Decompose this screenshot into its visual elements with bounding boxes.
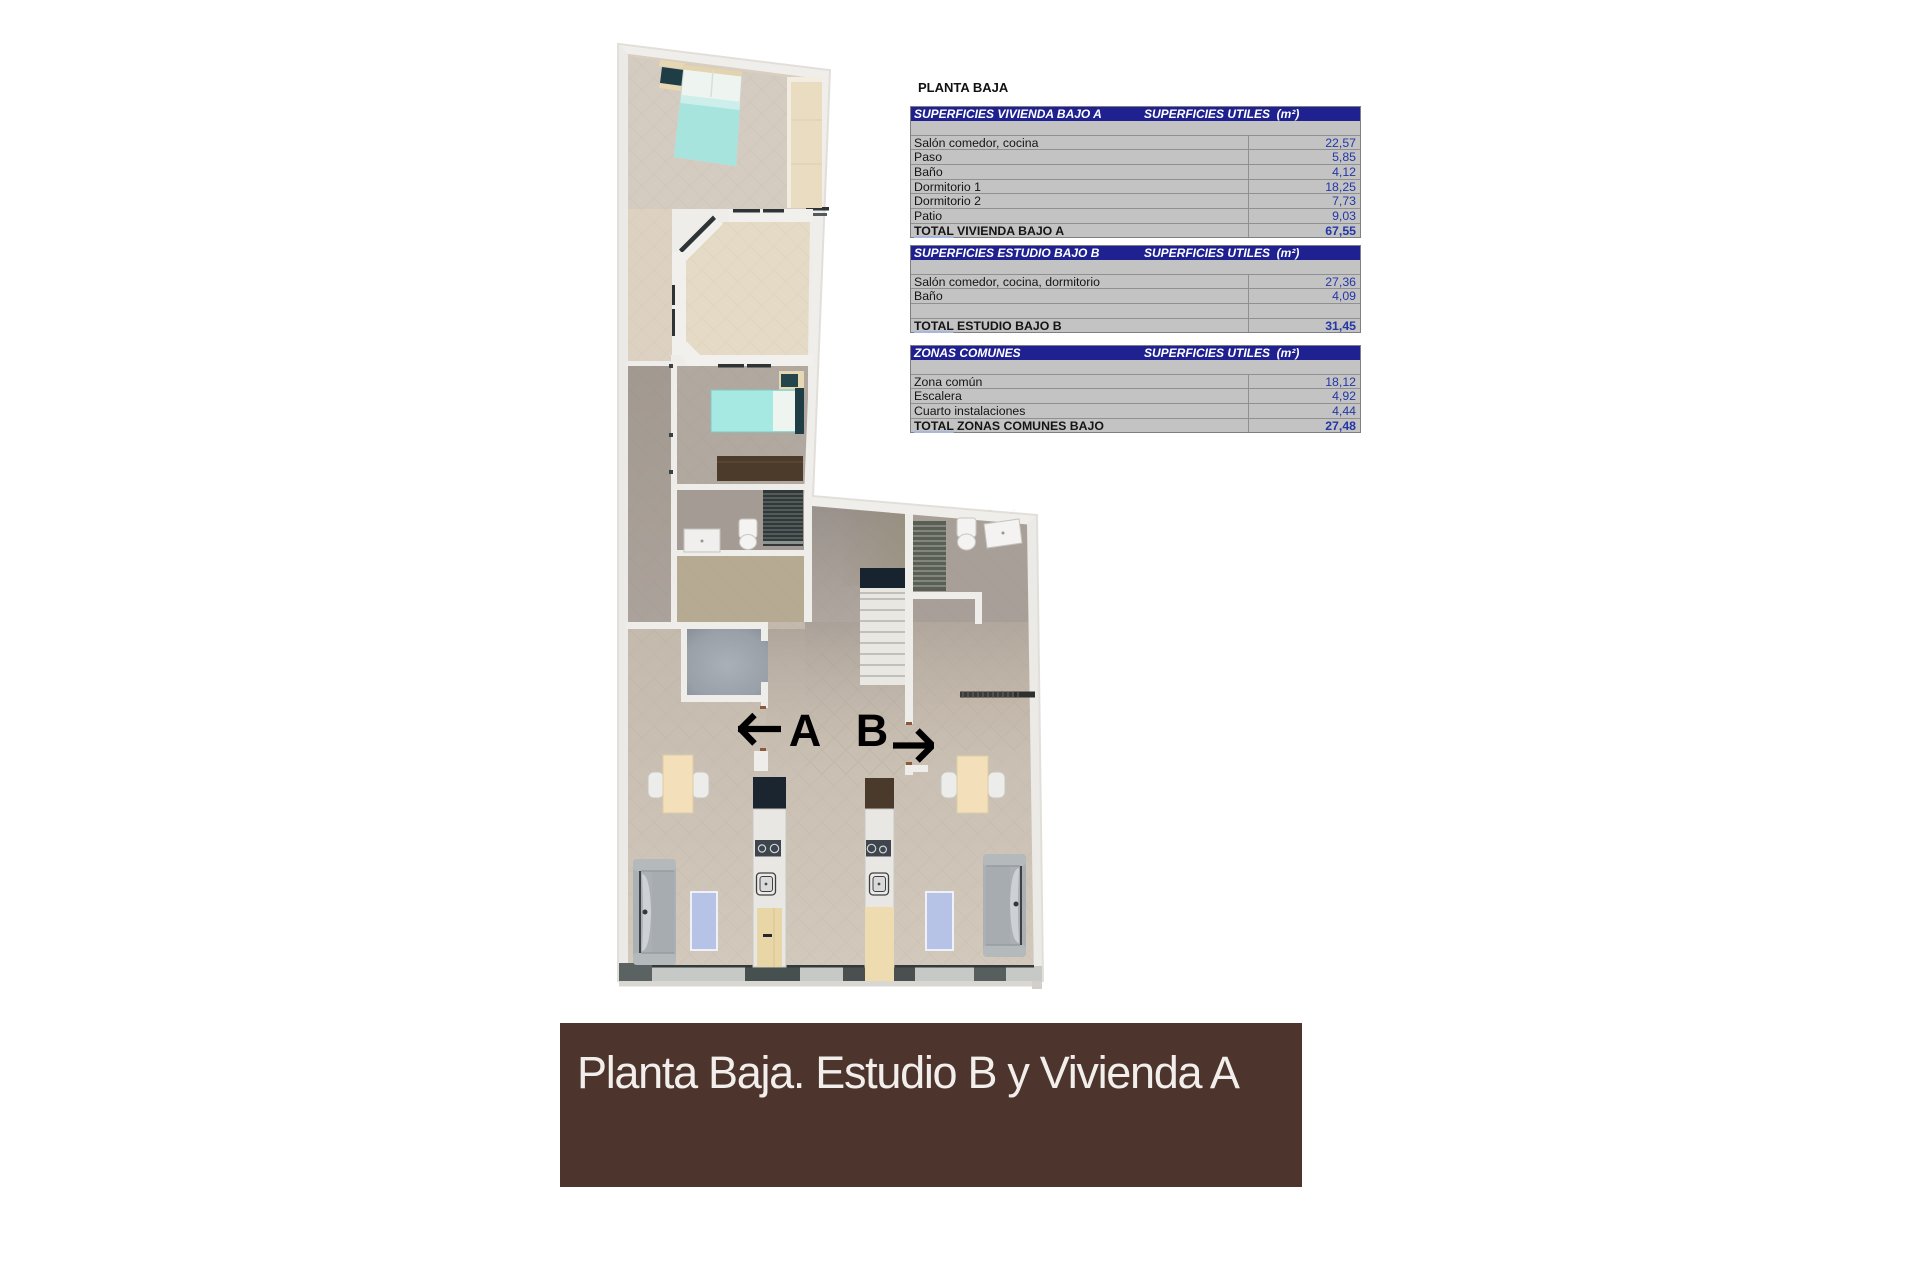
svg-text:B: B <box>856 705 889 756</box>
svg-text:A: A <box>789 705 822 756</box>
